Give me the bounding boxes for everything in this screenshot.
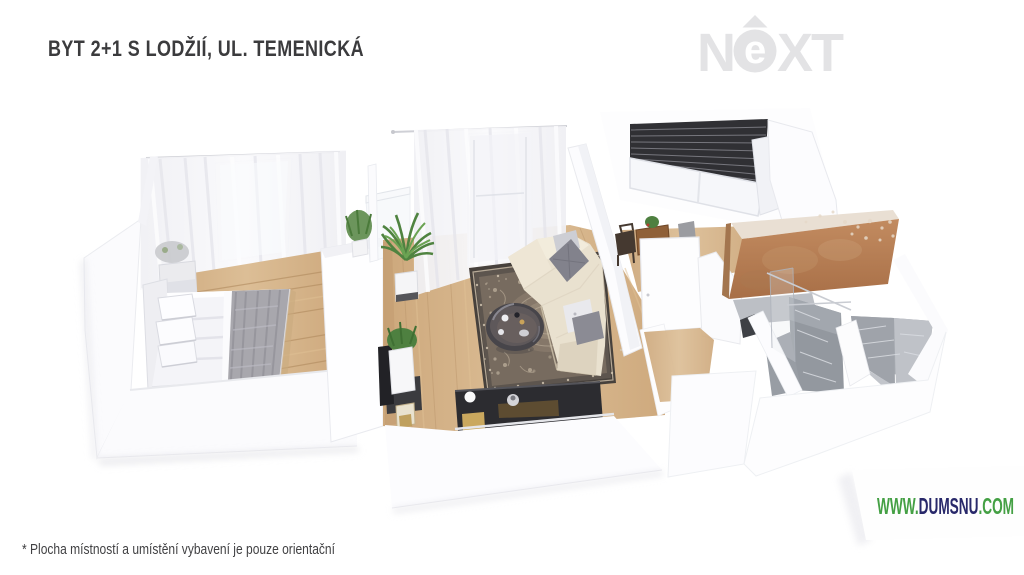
svg-text:X: X <box>777 23 813 80</box>
svg-text:e: e <box>744 28 766 72</box>
svg-text:N: N <box>697 23 736 80</box>
svg-text:T: T <box>811 23 844 80</box>
